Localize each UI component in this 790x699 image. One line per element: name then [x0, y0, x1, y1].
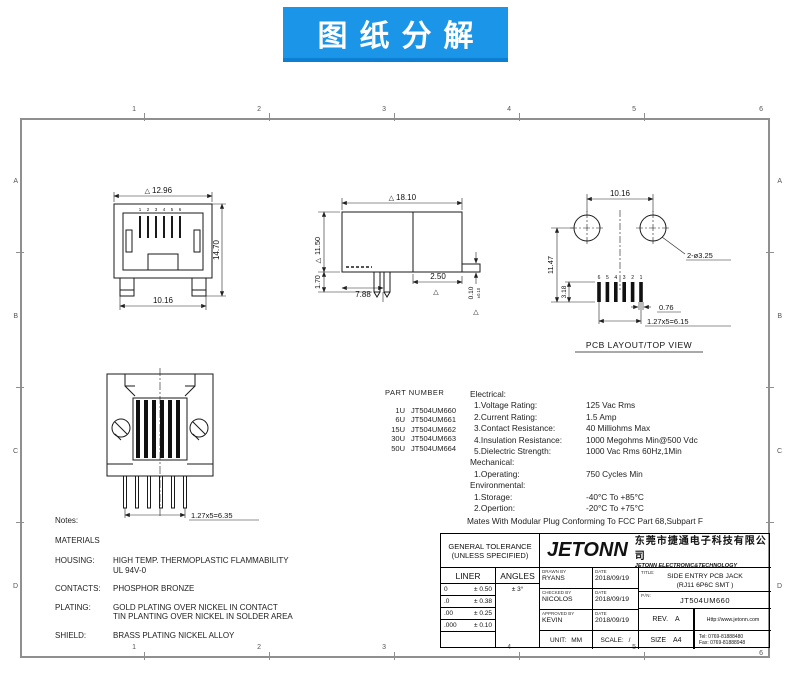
- scale-cell: SCALE: /: [593, 631, 638, 649]
- signoff-date-cell: DATE 2018/09/19: [593, 589, 638, 609]
- zone-row-label: D: [772, 583, 782, 590]
- spec-row: 1.Storage: -40°C To +85°C: [467, 492, 752, 503]
- pin-number: 4: [163, 207, 166, 212]
- banner: 图纸分解: [283, 7, 508, 62]
- signoff-name-cell: DRAWN BY RYANS: [540, 568, 593, 588]
- spec-label: 4.Insulation Resistance:: [474, 435, 586, 446]
- mates-note: Mates With Modular Plug Conforming To FC…: [467, 516, 752, 527]
- frame-tick: [144, 652, 145, 660]
- pad-number: 1: [640, 275, 643, 281]
- revision-triangle-icon: △: [433, 289, 439, 296]
- dim-front-height: 14.70: [212, 239, 221, 260]
- tolerance-base: .00: [444, 610, 453, 617]
- pad-number: 4: [614, 275, 617, 281]
- bottom-contact-bars: [136, 400, 180, 458]
- frame-tick: [269, 113, 270, 121]
- dim-side-width: 18.10: [396, 193, 417, 202]
- frame-tick: [144, 113, 145, 121]
- bottom-view-drawing: 1.27x5=6.35: [75, 368, 265, 523]
- pcb-caption: PCB LAYOUT/TOP VIEW: [586, 340, 692, 350]
- date-label: DATE: [595, 569, 636, 574]
- part-pn: JT504UM661: [411, 415, 456, 425]
- tolerance-heading-line2: (UNLESS SPECIFIED): [452, 551, 529, 560]
- spec-value: 125 Vac Rms: [586, 400, 635, 411]
- part-code: 50U: [385, 444, 405, 454]
- material-row: SHIELD: BRASS PLATING NICKEL ALLOY: [55, 631, 355, 641]
- revision-triangle-icon: △: [315, 257, 322, 263]
- signoff-name: NICOLOS: [542, 596, 590, 603]
- tolerance-value: ± 0.38: [474, 598, 492, 605]
- electrical-heading: Electrical:: [467, 389, 752, 400]
- size-label: SIZE: [650, 637, 666, 644]
- revision-triangle-icon: △: [389, 195, 395, 202]
- tolerance-heading: GENERAL TOLERANCE (UNLESS SPECIFIED): [441, 534, 540, 568]
- zone-row-label: D: [8, 583, 18, 590]
- frame-tick: [644, 113, 645, 121]
- rev-cell: REV. A: [639, 609, 694, 630]
- spec-label: 3.Contact Resistance:: [474, 423, 586, 434]
- part-number-row: 50U JT504UM664: [385, 444, 456, 454]
- tolerance-base: .000: [444, 622, 457, 629]
- contact-cell: Tel: 0769-81888480 Fax: 0769-81888948: [694, 631, 771, 649]
- company-header: JETONN 东莞市捷通电子科技有限公司 JETONN ELECTRONIC&T…: [540, 534, 771, 568]
- pcb-layout-drawing: 6 5 4 3 2 1 10.16 11.47 3.18 2-ø3.25 0.7…: [535, 186, 765, 356]
- part-number-row: 30U JT504UM663: [385, 434, 456, 444]
- spec-value: 1000 Megohms Min@500 Vdc: [586, 435, 698, 446]
- unit-label: UNIT:: [550, 637, 566, 644]
- signoff-name: KEVIN: [542, 617, 590, 624]
- revision-triangle-icon: △: [145, 188, 151, 195]
- signoff-role: CHECKED BY: [542, 590, 590, 595]
- part-number-list: PART NUMBER 1U JT504UM660 6U JT504UM661 …: [385, 388, 456, 453]
- zone-row-label: C: [8, 448, 18, 455]
- frame-tick: [16, 522, 24, 523]
- pin-number: 3: [155, 207, 158, 212]
- tolerance-row: 0 ± 0.50: [441, 584, 496, 596]
- holes-callout: 2-ø3.25: [687, 251, 713, 260]
- frame-tick: [394, 113, 395, 121]
- spec-value: -40°C To +85°C: [586, 492, 644, 503]
- signoff-date-cell: DATE 2018/09/19: [593, 568, 638, 588]
- part-no-value: JT504UM660: [680, 596, 730, 605]
- tolerance-value: ± 0.25: [474, 610, 492, 617]
- zone-col-label: 6: [753, 106, 763, 113]
- drawing-title-line2: (RJ11 6P6C SMT ): [639, 582, 771, 591]
- signoff-date: 2018/09/19: [595, 575, 636, 582]
- dim-front-width: 12.96: [152, 186, 173, 195]
- spec-label: 1.Storage:: [474, 492, 586, 503]
- zone-row-label: B: [772, 313, 782, 320]
- part-pn: JT504UM664: [411, 444, 456, 454]
- spec-row: 2.Current Rating: 1.5 Amp: [467, 412, 752, 423]
- spec-value: 750 Cycles Min: [586, 469, 643, 480]
- zone-col-label: 5: [626, 106, 636, 113]
- material-label: SHIELD:: [55, 631, 113, 641]
- pad-number: 5: [606, 275, 609, 281]
- part-code: 30U: [385, 434, 405, 444]
- signoff-name-cell: APPROVED BY KEVIN: [540, 610, 593, 630]
- frame-tick: [519, 652, 520, 660]
- liner-column-header: LINER: [441, 568, 496, 584]
- side-body-outline: [342, 212, 480, 297]
- spec-value: -20°C To +75°C: [586, 503, 644, 514]
- title-label: TITLE:: [641, 569, 655, 578]
- scale-label: SCALE:: [601, 637, 624, 644]
- part-no-cell: P/N: JT504UM660: [639, 592, 771, 609]
- signoff-row: DRAWN BY RYANS DATE 2018/09/19: [540, 568, 638, 589]
- spec-row: 3.Contact Resistance: 40 Milliohms Max: [467, 423, 752, 434]
- zone-row-label: B: [8, 313, 18, 320]
- signoff-name-cell: CHECKED BY NICOLOS: [540, 589, 593, 609]
- zone-col-label: 3: [376, 644, 386, 651]
- dim-pcb-pad-width: 0.76: [659, 303, 674, 312]
- angle-tolerance-value: ± 3°: [496, 584, 540, 648]
- front-pin-numbers: 1 2 3 4 5 6: [139, 207, 182, 212]
- pad-number: 2: [631, 275, 634, 281]
- material-value: BRASS PLATING NICKEL ALLOY: [113, 631, 355, 641]
- spec-value: 1.5 Amp: [586, 412, 616, 423]
- fax-line: Fax: 0769-81888948: [699, 640, 745, 646]
- signoff-role: APPROVED BY: [542, 611, 590, 616]
- rev-value: A: [675, 616, 680, 623]
- unit-value: MM: [571, 637, 582, 644]
- frame-tick: [16, 387, 24, 388]
- size-value: A4: [673, 637, 682, 644]
- dim-side-standoff-tol: ±0.10: [476, 287, 481, 298]
- spec-label: 2.Current Rating:: [474, 412, 586, 423]
- signoff-row: APPROVED BY KEVIN DATE 2018/09/19: [540, 610, 638, 631]
- zone-col-label: 1: [126, 106, 136, 113]
- pcb-dim-lines: [551, 194, 731, 326]
- title-pn-section: TITLE: SIDE ENTRY PCB JACK (RJ11 6P6C SM…: [638, 568, 771, 649]
- tolerance-value: ± 0.50: [474, 586, 492, 593]
- unit-scale-row: UNIT: MM SCALE: /: [540, 631, 638, 649]
- frame-tick: [766, 252, 774, 253]
- frame-tick: [766, 522, 774, 523]
- spec-row: 1.Voltage Rating: 125 Vac Rms: [467, 400, 752, 411]
- signoff-date: 2018/09/19: [595, 596, 636, 603]
- mechanical-heading: Mechanical:: [467, 457, 752, 468]
- environmental-heading: Environmental:: [467, 480, 752, 491]
- tolerance-row: .000 ± 0.10: [441, 620, 496, 632]
- pin-number: 6: [179, 207, 182, 212]
- spec-row: 2.Opertion: -20°C To +75°C: [467, 503, 752, 514]
- drawing-title-cell: TITLE: SIDE ENTRY PCB JACK (RJ11 6P6C SM…: [639, 568, 771, 592]
- materials-heading: MATERIALS: [55, 536, 355, 545]
- spec-row: 1.Operating: 750 Cycles Min: [467, 469, 752, 480]
- banner-title: 图纸分解: [306, 11, 486, 55]
- specifications: Electrical: 1.Voltage Rating: 125 Vac Rm…: [467, 389, 752, 528]
- revision-triangle-icon: △: [473, 309, 479, 316]
- material-row: PLATING: GOLD PLATING OVER NICKEL IN CON…: [55, 603, 355, 622]
- dim-side-standoff: 0.10: [468, 286, 475, 299]
- tolerance-base: 0: [444, 586, 448, 593]
- zone-col-label: 3: [376, 106, 386, 113]
- dim-front-feet: 10.16: [153, 296, 174, 305]
- signoff-date: 2018/09/19: [595, 617, 636, 624]
- spec-label: 5.Dielectric Strength:: [474, 446, 586, 457]
- signoff-row: CHECKED BY NICOLOS DATE 2018/09/19: [540, 589, 638, 610]
- spec-value: 40 Milliohms Max: [586, 423, 650, 434]
- company-name-cn: 东莞市捷通电子科技有限公司: [635, 532, 771, 562]
- size-cell: SIZE A4: [639, 631, 694, 649]
- zone-row-label: A: [8, 178, 18, 185]
- part-number-row: 1U JT504UM660: [385, 406, 456, 416]
- part-number-row: 15U JT504UM662: [385, 425, 456, 435]
- dim-side-height: 11.50: [313, 237, 322, 255]
- frame-tick: [644, 652, 645, 660]
- notes-heading: Notes:: [55, 516, 355, 525]
- part-number-row: 6U JT504UM661: [385, 415, 456, 425]
- notes-section: Notes: MATERIALS HOUSING: HIGH TEMP. THE…: [55, 516, 355, 649]
- bottom-pins: [124, 476, 187, 508]
- spec-row: 5.Dielectric Strength: 1000 Vac Rms 60Hz…: [467, 446, 752, 457]
- tolerance-rows: 0 ± 0.50 .0 ± 0.38 .00 ± 0.25 .000 ± 0.1…: [441, 584, 496, 632]
- rev-label: REV.: [652, 616, 668, 623]
- tolerance-row: .0 ± 0.38: [441, 596, 496, 608]
- date-label: DATE: [595, 590, 636, 595]
- tolerance-empty-cell: [441, 632, 496, 648]
- dim-side-leg: 1.70: [315, 275, 322, 289]
- tolerance-row: .00 ± 0.25: [441, 608, 496, 620]
- material-label: PLATING:: [55, 603, 113, 622]
- material-row: HOUSING: HIGH TEMP. THERMOPLASTIC FLAMMA…: [55, 556, 355, 575]
- zone-row-label: A: [772, 178, 782, 185]
- spec-label: 1.Voltage Rating:: [474, 400, 586, 411]
- spec-label: 2.Opertion:: [474, 503, 586, 514]
- material-value: PHOSPHOR BRONZE: [113, 584, 355, 594]
- dim-side-tab: 2.50: [430, 272, 446, 281]
- zone-col-label: 4: [501, 106, 511, 113]
- front-view-drawing: 1 2 3 4 5 6 △ 12.96 14.70 10.16: [92, 182, 262, 332]
- part-code: 1U: [385, 406, 405, 416]
- zone-row-label: C: [772, 448, 782, 455]
- title-block: GENERAL TOLERANCE (UNLESS SPECIFIED) LIN…: [440, 533, 770, 648]
- front-contacts: [140, 216, 180, 238]
- dim-pcb-pad-length: 3.18: [561, 285, 568, 298]
- pad-number: 6: [598, 275, 601, 281]
- date-label: DATE: [595, 611, 636, 616]
- tolerance-base: .0: [444, 598, 449, 605]
- tolerance-value: ± 0.10: [474, 622, 492, 629]
- dim-side-leg-pos: 7.88: [355, 290, 371, 299]
- rev-row: REV. A Http://www.jetonn.com: [639, 609, 771, 631]
- website-cell: Http://www.jetonn.com: [694, 609, 771, 630]
- signoff-role: DRAWN BY: [542, 569, 590, 574]
- unit-cell: UNIT: MM: [540, 631, 593, 649]
- spec-value: 1000 Vac Rms 60Hz,1Min: [586, 446, 682, 457]
- dim-pcb-depth: 11.47: [546, 256, 555, 274]
- part-code: 15U: [385, 425, 405, 435]
- material-row: CONTACTS: PHOSPHOR BRONZE: [55, 584, 355, 594]
- material-value: GOLD PLATING OVER NICKEL IN CONTACT TIN …: [113, 603, 355, 622]
- part-pn: JT504UM662: [411, 425, 456, 435]
- pin-number: 5: [171, 207, 174, 212]
- part-no-label: P/N:: [641, 593, 652, 598]
- spec-row: 4.Insulation Resistance: 1000 Megohms Mi…: [467, 435, 752, 446]
- frame-tick: [766, 387, 774, 388]
- part-pn: JT504UM663: [411, 434, 456, 444]
- frame-tick: [519, 113, 520, 121]
- pin-number: 2: [147, 207, 150, 212]
- material-label: CONTACTS:: [55, 584, 113, 594]
- pad-number: 3: [623, 275, 626, 281]
- zone-col-label: 2: [251, 106, 261, 113]
- material-label: HOUSING:: [55, 556, 113, 575]
- part-pn: JT504UM660: [411, 406, 456, 416]
- part-number-heading: PART NUMBER: [385, 388, 456, 398]
- drawing-title-line1: SIDE ENTRY PCB JACK: [639, 573, 771, 582]
- dim-pcb-pitch: 1.27x5=6.15: [647, 317, 689, 326]
- drawing-sheet: 图纸分解 1 2 3 4 5 6 1 2 3 4 5 6 A B C D A B…: [0, 0, 790, 699]
- pcb-centerlines: [570, 210, 670, 290]
- signoff-section: DRAWN BY RYANS DATE 2018/09/19 CHECKED B…: [540, 568, 638, 649]
- frame-tick: [269, 652, 270, 660]
- dim-pcb-span: 10.16: [610, 189, 631, 198]
- tolerance-heading-line1: GENERAL TOLERANCE: [448, 542, 531, 551]
- angles-column-header: ANGLES: [496, 568, 540, 584]
- signoff-name: RYANS: [542, 575, 590, 582]
- company-names: 东莞市捷通电子科技有限公司 JETONN ELECTRONIC&TECHNOLO…: [635, 532, 771, 569]
- frame-tick: [394, 652, 395, 660]
- company-logo: JETONN: [547, 539, 628, 562]
- spec-label: 1.Operating:: [474, 469, 586, 480]
- frame-tick: [16, 252, 24, 253]
- part-code: 6U: [385, 415, 405, 425]
- material-value: HIGH TEMP. THERMOPLASTIC FLAMMABILITY UL…: [113, 556, 355, 575]
- side-view-drawing: △ 18.10 △ 11.50 1.70 7.88 2.50 △ 0.10 ±0…: [308, 192, 508, 337]
- size-row: SIZE A4 Tel: 0769-81888480 Fax: 0769-818…: [639, 631, 771, 649]
- zone-col-label: 6: [753, 650, 763, 657]
- signoff-date-cell: DATE 2018/09/19: [593, 610, 638, 630]
- pin-number: 1: [139, 207, 142, 212]
- scale-value: /: [629, 637, 631, 644]
